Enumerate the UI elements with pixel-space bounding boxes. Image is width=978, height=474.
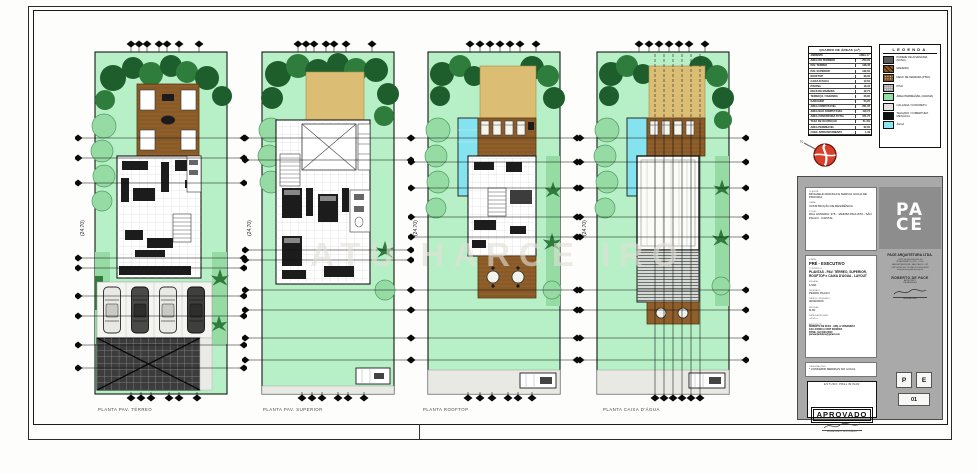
legend-item: CALÇADA / CONCRETO: [883, 103, 937, 111]
architect-registration: CAU A00000-0: [879, 282, 941, 285]
rooftop-rooms: [468, 156, 536, 256]
date-value: 00/00/0000: [809, 300, 873, 303]
client-value: MICHAELE FRANCHI E MARCIA GIULIA DE PROC…: [809, 193, 873, 200]
car: [104, 287, 121, 333]
legend-items: PAREDE DE ALVENARIA (NOVA) MADEIRA DECK …: [883, 56, 937, 130]
revdate-value: --/--/----: [809, 317, 873, 320]
stage-value: PRÉ - EXECUTIVO: [809, 261, 873, 266]
rooftop-deck: [647, 118, 705, 156]
approval-stamp: ESTUDO PRELIMINAR APROVADO ASSINATURA DO…: [807, 381, 877, 418]
architect-signature: [892, 287, 928, 297]
dimension-note: (24.70): [582, 220, 588, 236]
observations-box: OBSERVAÇÕES: * CONFERIR MEDIDAS NO LOCAL: [805, 362, 877, 377]
driveway: [97, 338, 212, 390]
stamp-signature: [822, 422, 862, 430]
legend-item: ÁREA PERMEÁVEL (GRAMA): [883, 93, 937, 101]
legend-swatch: [883, 84, 894, 92]
signature-caption: ASSINATURA: [879, 298, 941, 301]
car: [132, 287, 149, 333]
legend-item: TELHADO / COBERTURA METÁLICA: [883, 112, 937, 120]
utility-box: [356, 368, 390, 384]
stamp-sign-caption: ASSINATURA DO RESPONSÁVEL: [808, 431, 876, 433]
plan-terreo-drawing: (24.70): [75, 38, 247, 406]
stamp-header: ESTUDO PRELIMINAR: [808, 383, 876, 386]
fold-mark: [419, 424, 420, 439]
firm-name: PACE ARQUITETURA LTDA.: [879, 253, 941, 257]
areas-table-rows: ÁREA DO TERRENO250,00 PAV. TÉRREO128,45 …: [809, 59, 871, 135]
legend-swatch: [883, 65, 894, 73]
client-info-box: CLIENTE: MICHAELE FRANCHI E MARCIA GIULI…: [805, 187, 877, 251]
plan-caption-terreo: PLANTA PAV. TÉRREO: [98, 407, 152, 412]
firm-address-lines: CNPJ 00.000.000/0001-00RUA EXEMPLO, 000 …: [879, 259, 941, 273]
car: [188, 287, 205, 333]
project-info-box: ETAPA: PRÉ - EXECUTIVO CONTEÚDO: PLANTAS…: [805, 255, 877, 358]
plan-caption-rooftop: PLANTA ROOFTOP: [423, 407, 469, 412]
plan-rooftop-drawing: (24.70): [408, 38, 580, 406]
table-row: COEF. APROVEITAMENTO1,49: [809, 130, 871, 135]
areas-table-title: QUADRO DE ÁREAS (m²): [809, 47, 871, 54]
north-label: N: [800, 139, 803, 144]
dimension-note: (24.70): [247, 220, 253, 236]
plan-caption-superior: PLANTA PAV. SUPERIOR: [263, 407, 323, 412]
legend-item: DECK DE MADEIRA (PISO): [883, 74, 937, 82]
legend-swatch: [883, 56, 894, 64]
scale-value: 1/100: [809, 284, 873, 287]
garage: [97, 282, 212, 338]
sheet-code-e: E: [916, 372, 932, 388]
firm-logo: PA CE: [879, 187, 941, 249]
legend-item: PISO: [883, 84, 937, 92]
areas-table: QUADRO DE ÁREAS (m²) AMBIENTEÁREA m² ÁRE…: [808, 46, 872, 136]
lounge-deck: [478, 256, 536, 298]
legend-swatch: [883, 93, 894, 101]
water-tank-roof: [637, 250, 699, 302]
revision-value: R-00: [809, 309, 873, 312]
dimension-note: (24.70): [413, 220, 419, 236]
firm-info: PACE ARQUITETURA LTDA. CNPJ 00.000.000/0…: [879, 253, 941, 300]
legend-item: MADEIRA: [883, 65, 937, 73]
dimension-note: (24.70): [80, 220, 86, 236]
drawing-value: PEDRO PAULO: [809, 292, 873, 295]
legend-panel: LEGENDA PAREDE DE ALVENARIA (NOVA) MADEI…: [879, 44, 941, 148]
legend-swatch: [883, 103, 894, 111]
architect-lines: ROBERTO DE PACE - ARQ. E URBANISTACAU A0…: [809, 326, 873, 337]
void-over-deck: [306, 72, 364, 120]
plan-superior-drawing: (24.70): [242, 38, 414, 406]
title-block: CLIENTE: MICHAELE FRANCHI E MARCIA GIULI…: [797, 176, 943, 420]
car: [160, 287, 177, 333]
legend-item: ÁGUA: [883, 121, 937, 129]
legend-swatch: [883, 74, 894, 82]
building-terreo: [117, 156, 201, 278]
north-arrow-icon: N: [799, 136, 841, 170]
content-value: PLANTAS - PAV. TÉRREO, SUPERIOR, ROOFTOP…: [809, 271, 873, 279]
legend-item: PAREDE DE ALVENARIA (NOVA): [883, 56, 937, 64]
skylight-roof: [637, 156, 699, 250]
plan-caption-caixa: PLANTA CAIXA D'ÁGUA: [603, 407, 660, 412]
legend-swatch: [883, 112, 894, 120]
wood-deck: [137, 84, 199, 156]
stamp-approved-text: APROVADO: [813, 409, 872, 421]
site-value: RUA HUNGRIA, 976 - JARDIM PAULISTA - SÃO…: [809, 213, 873, 220]
sheet-number: 01: [898, 393, 930, 406]
legend-swatch: [883, 121, 894, 129]
legend-title: LEGENDA: [883, 47, 937, 54]
obs-value: * CONFERIR MEDIDAS NO LOCAL: [809, 368, 873, 371]
logo-line-2: CE: [896, 218, 924, 233]
plan-caixa-dagua-drawing: (24.70): [577, 38, 749, 406]
sheet-code-p: P: [896, 372, 912, 388]
drawing-sheet: (24.70): [0, 0, 978, 474]
rooftop-deck: [478, 118, 536, 156]
work-value: CONSTRUÇÃO DE RESIDÊNCIA: [809, 205, 873, 208]
building-superior: [276, 120, 370, 284]
